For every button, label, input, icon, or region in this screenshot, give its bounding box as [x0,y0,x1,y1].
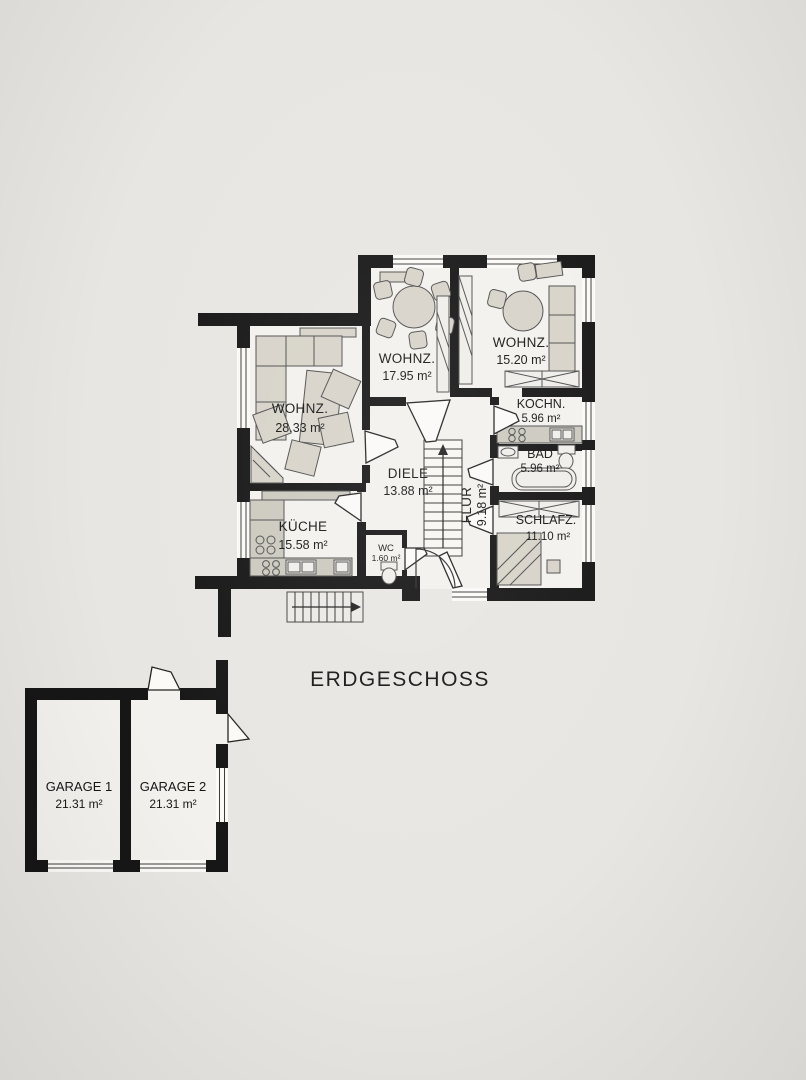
label-wohnz-right-name: WOHNZ. [493,335,550,350]
label-garage2-area: 21.31 m² [149,797,196,811]
chair [487,289,508,310]
window-entry-sidelight [452,588,487,601]
stairs-interior [424,440,462,556]
label-kochn-name: KOCHN. [517,397,566,411]
fixtures-wc [381,562,397,584]
label-wohnz-mid-name: WOHNZ. [379,351,436,366]
label-garage1-name: GARAGE 1 [46,779,112,794]
garage-door-1 [48,860,113,872]
label-garage2-name: GARAGE 2 [140,779,206,794]
nightstand [547,560,560,573]
label-schlafz-area: 11.10 m² [526,531,571,543]
label-kueche-name: KÜCHE [279,519,328,534]
label-garage1-area: 21.31 m² [55,797,102,811]
window-right-kochn [582,402,595,440]
garage-door-2 [140,860,206,872]
label-wohnz-left-area: 28.33 m² [275,421,324,435]
chair [517,262,537,282]
chair [373,280,393,300]
table [503,291,543,331]
label-flur-name: FLUR [459,487,474,523]
window-top-wohnz-mid [393,255,443,268]
bench [535,261,563,278]
floorplan-page: WOHNZ. 28.33 m² WOHNZ. 17.95 m² WOHNZ. 1… [0,0,806,1080]
stairs-exterior [287,592,363,622]
chair [404,267,425,288]
label-diele-name: DIELE [388,466,429,481]
label-kochn-area: 5.96 m² [522,413,561,425]
label-wohnz-left-name: WOHNZ. [272,401,329,416]
garage-window-right [216,768,228,822]
label-bad-name: BAD [527,447,553,461]
toilet-bowl [382,568,396,584]
label-schlafz-name: SCHLAFZ. [516,513,576,527]
sliding-panel [437,296,449,392]
door-garage-right [228,714,249,742]
fixtures-kochn [497,426,582,443]
wardrobe-crossed [505,371,579,387]
window-right-wohnz [582,278,595,322]
door-garage-top [148,667,180,690]
window-left-wohnz [237,348,250,428]
label-wohnz-mid-area: 17.95 m² [382,369,431,383]
label-diele-area: 13.88 m² [383,484,432,498]
label-kueche-area: 15.58 m² [278,538,327,552]
sliding-panel [459,276,472,384]
label-wc-area: 1.60 m² [372,553,401,563]
dining-table [393,286,435,328]
shelf-unit [549,286,575,372]
window-right-schlafz [582,505,595,562]
floor-title: ERDGESCHOSS [310,668,490,691]
window-right-bad [582,450,595,487]
label-bad-area: 5.96 m² [521,463,560,475]
cushion [285,440,321,476]
toilet-bowl [559,453,573,469]
window-left-kueche [237,502,250,558]
label-flur-area: 9.18 m² [475,484,489,526]
label-wohnz-right-area: 15.20 m² [496,353,545,367]
chair [408,330,427,349]
floorplan-drawing: WOHNZ. 28.33 m² WOHNZ. 17.95 m² WOHNZ. 1… [0,0,806,1080]
